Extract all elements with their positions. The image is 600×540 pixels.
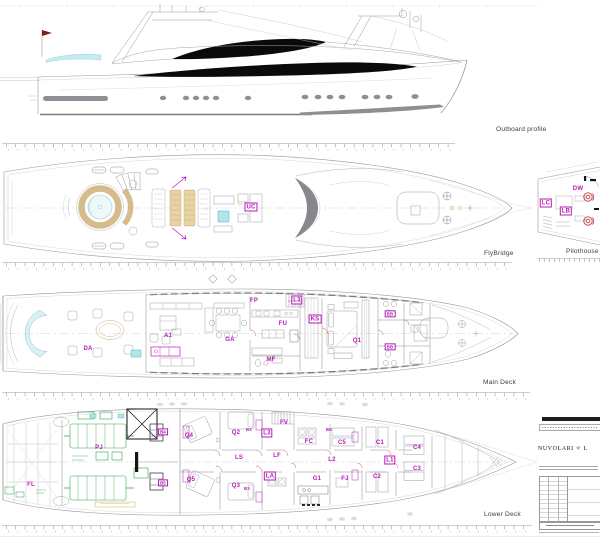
room-label-q4: Q4	[185, 433, 193, 439]
room-label-c1: C1	[376, 440, 384, 446]
room-label-lb: LB	[560, 207, 572, 216]
room-label-ls: LS	[235, 455, 243, 461]
room-label-c5: C5	[338, 440, 346, 446]
caption-outboard-profile: Outboard profile	[496, 126, 546, 133]
room-label-q2: Q2	[232, 430, 240, 436]
room-label-bb: BB	[385, 310, 396, 317]
room-label-b4: B4	[158, 428, 168, 435]
brand-logo: NUVOLARI ✧ L	[538, 445, 600, 454]
room-label-l1: L1	[384, 456, 395, 465]
labels-overlay: Outboard profile FlyBridge Pilothouse Ma…	[0, 0, 600, 540]
title-block: NUVOLARI ✧ L	[538, 414, 600, 540]
room-label-b2: B2	[246, 428, 252, 432]
room-label-g1: G1	[313, 476, 321, 482]
room-label-q3: Q3	[232, 483, 240, 489]
title-block-note-strip	[539, 424, 600, 431]
room-label-uc: UC	[244, 203, 257, 212]
room-label-la: LA	[264, 472, 276, 481]
room-label-dw: DW	[573, 186, 583, 192]
caption-pilothouse: Pilothouse	[566, 248, 599, 255]
room-label-ga: GA	[225, 337, 234, 343]
room-label-l3: L3	[291, 296, 302, 305]
title-block-footer	[539, 521, 600, 530]
room-label-lc: LC	[540, 199, 552, 208]
room-label-l2: L2	[328, 457, 335, 463]
title-block-table-left	[540, 477, 568, 522]
ga-drawing-sheet: Outboard profile FlyBridge Pilothouse Ma…	[0, 0, 600, 540]
room-label-l3: L3	[261, 429, 272, 438]
room-label-ks: KS	[309, 315, 322, 324]
room-label-c2: C2	[373, 474, 381, 480]
room-label-fp: FP	[250, 298, 258, 304]
room-label-fj: FJ	[341, 476, 348, 482]
room-label-q5: Q5	[187, 477, 195, 483]
title-block-bottom-line	[539, 532, 599, 533]
room-label-b5: B5	[158, 479, 168, 486]
room-label-bb: BB	[385, 343, 396, 350]
title-block-disclaimer	[539, 466, 598, 472]
room-label-fc: FC	[305, 439, 313, 445]
room-label-da: DA	[83, 346, 92, 352]
room-label-fv: FV	[280, 420, 288, 426]
title-block-top-bar	[542, 417, 600, 421]
room-label-fu: FU	[279, 321, 287, 327]
room-label-a1: A1	[164, 333, 172, 339]
room-label-b3: B3	[244, 487, 250, 491]
room-label-c4: C4	[413, 445, 421, 451]
room-label-be: BE	[326, 428, 332, 432]
room-label-fl: FL	[27, 482, 35, 488]
room-label-lf: LF	[273, 453, 281, 459]
room-label-c3: C3	[413, 466, 421, 472]
room-label-pj: PJ	[95, 445, 103, 451]
caption-main-deck: Main Deck	[483, 379, 516, 386]
room-label-mf: MF	[266, 357, 275, 363]
title-block-table	[539, 476, 600, 523]
title-block-table-right	[568, 477, 600, 522]
caption-lower-deck: Lower Deck	[484, 511, 521, 518]
caption-flybridge: FlyBridge	[484, 250, 514, 257]
room-label-q1: Q1	[353, 338, 361, 344]
